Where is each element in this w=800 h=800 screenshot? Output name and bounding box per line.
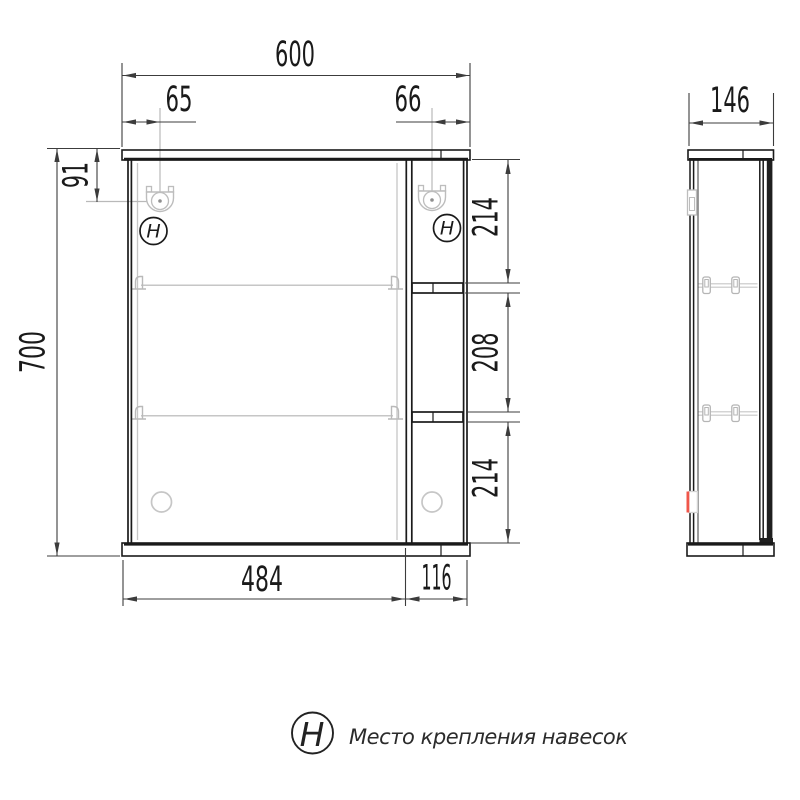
cabinet-top-panel xyxy=(122,150,470,160)
dim-label-208: 208 xyxy=(467,333,507,373)
legend: H Место крепления навесок xyxy=(292,713,630,755)
dim-label-214-top: 214 xyxy=(467,197,507,237)
dim-depth: 146 xyxy=(689,81,774,146)
dim-label-484: 484 xyxy=(241,560,283,600)
side-shelf-line-top xyxy=(698,277,758,294)
legend-symbol-letter: H xyxy=(300,715,325,754)
legend-hanger-symbol: H xyxy=(292,713,333,755)
dim-right-section-bottom: 214 xyxy=(466,422,520,543)
door-column-divider-panel xyxy=(406,160,412,543)
dim-hanger-top: 91 xyxy=(57,148,100,202)
cabinet-bottom-panel xyxy=(122,543,470,556)
back-rail xyxy=(767,160,773,540)
mirror-door-hidden-edges xyxy=(138,163,398,540)
dim-label-65: 65 xyxy=(166,80,193,120)
dim-label-700: 700 xyxy=(14,331,54,373)
side-view: 146 xyxy=(687,81,774,556)
side-body-lines xyxy=(690,160,773,546)
dim-label-214-bottom: 214 xyxy=(467,458,507,498)
legend-label: Место крепления навесок xyxy=(349,725,630,749)
drawing-canvas: H H 600 65 xyxy=(0,0,800,800)
dim-column-width: 116 xyxy=(406,559,468,607)
dim-label-116: 116 xyxy=(422,559,452,599)
cabinet-left-side-panel xyxy=(128,160,131,543)
door-knob-hole xyxy=(152,492,172,512)
front-view: H H 600 65 xyxy=(14,35,521,606)
side-bottom-panel xyxy=(687,543,774,556)
door-hidden-shelf-bottom xyxy=(131,407,403,420)
dim-label-91: 91 xyxy=(57,162,97,188)
side-shelf-line-bottom xyxy=(698,405,758,422)
hanger-symbol-left-letter: H xyxy=(146,221,160,243)
side-column-shelf-top xyxy=(412,283,463,293)
hanger-symbol-left: H xyxy=(140,218,167,245)
door-hidden-shelf-top xyxy=(131,277,403,290)
hanger-symbol-right: H xyxy=(434,215,461,242)
dim-right-section-top: 214 xyxy=(465,160,520,284)
dim-hanger-left: 65 xyxy=(122,80,196,125)
side-hanger-bracket xyxy=(688,190,697,215)
dim-label-66: 66 xyxy=(395,80,422,120)
technical-drawing-mirror-cabinet: H H 600 65 xyxy=(0,0,800,800)
dim-right-section-middle: 208 xyxy=(465,293,520,412)
dim-overall-height: 700 xyxy=(14,148,121,556)
dim-label-146: 146 xyxy=(710,81,750,121)
side-top-panel xyxy=(688,150,774,160)
column-knob-hole xyxy=(422,492,442,512)
dim-label-600: 600 xyxy=(275,35,315,75)
hanger-symbol-right-letter: H xyxy=(440,218,454,240)
side-door-handle xyxy=(688,492,697,513)
side-column-shelf-bottom xyxy=(412,412,463,422)
